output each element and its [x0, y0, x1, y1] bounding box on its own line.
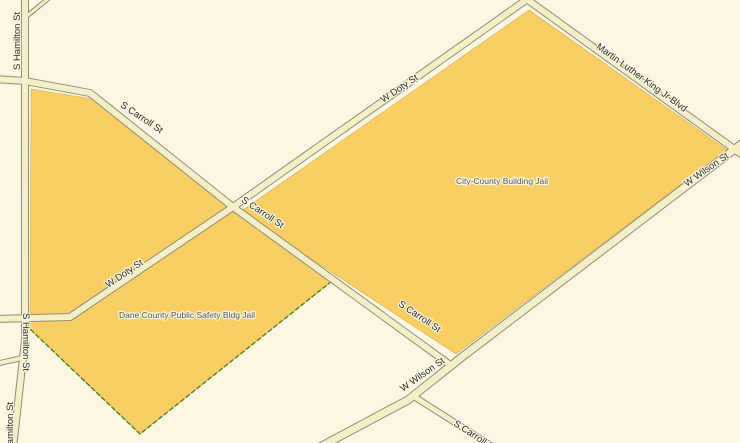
- place-label-city-county-building-jail: City-County Building Jail: [456, 176, 548, 186]
- street-label-s-hamilton-st-middle: S Hamilton St: [20, 313, 31, 371]
- place-label-dane-county-public-safety-bldg-jail: Dane County Public Safety Bldg Jail: [119, 310, 255, 320]
- map-viewport[interactable]: S Hamilton StS Carroll StW Doty StMartin…: [0, 0, 740, 443]
- map-canvas[interactable]: S Hamilton StS Carroll StW Doty StMartin…: [0, 0, 740, 443]
- street-label-s-hamilton-st-bottom-clipped: S Hamilton St: [5, 402, 16, 443]
- street-label-s-hamilton-st-top: S Hamilton St: [12, 12, 23, 70]
